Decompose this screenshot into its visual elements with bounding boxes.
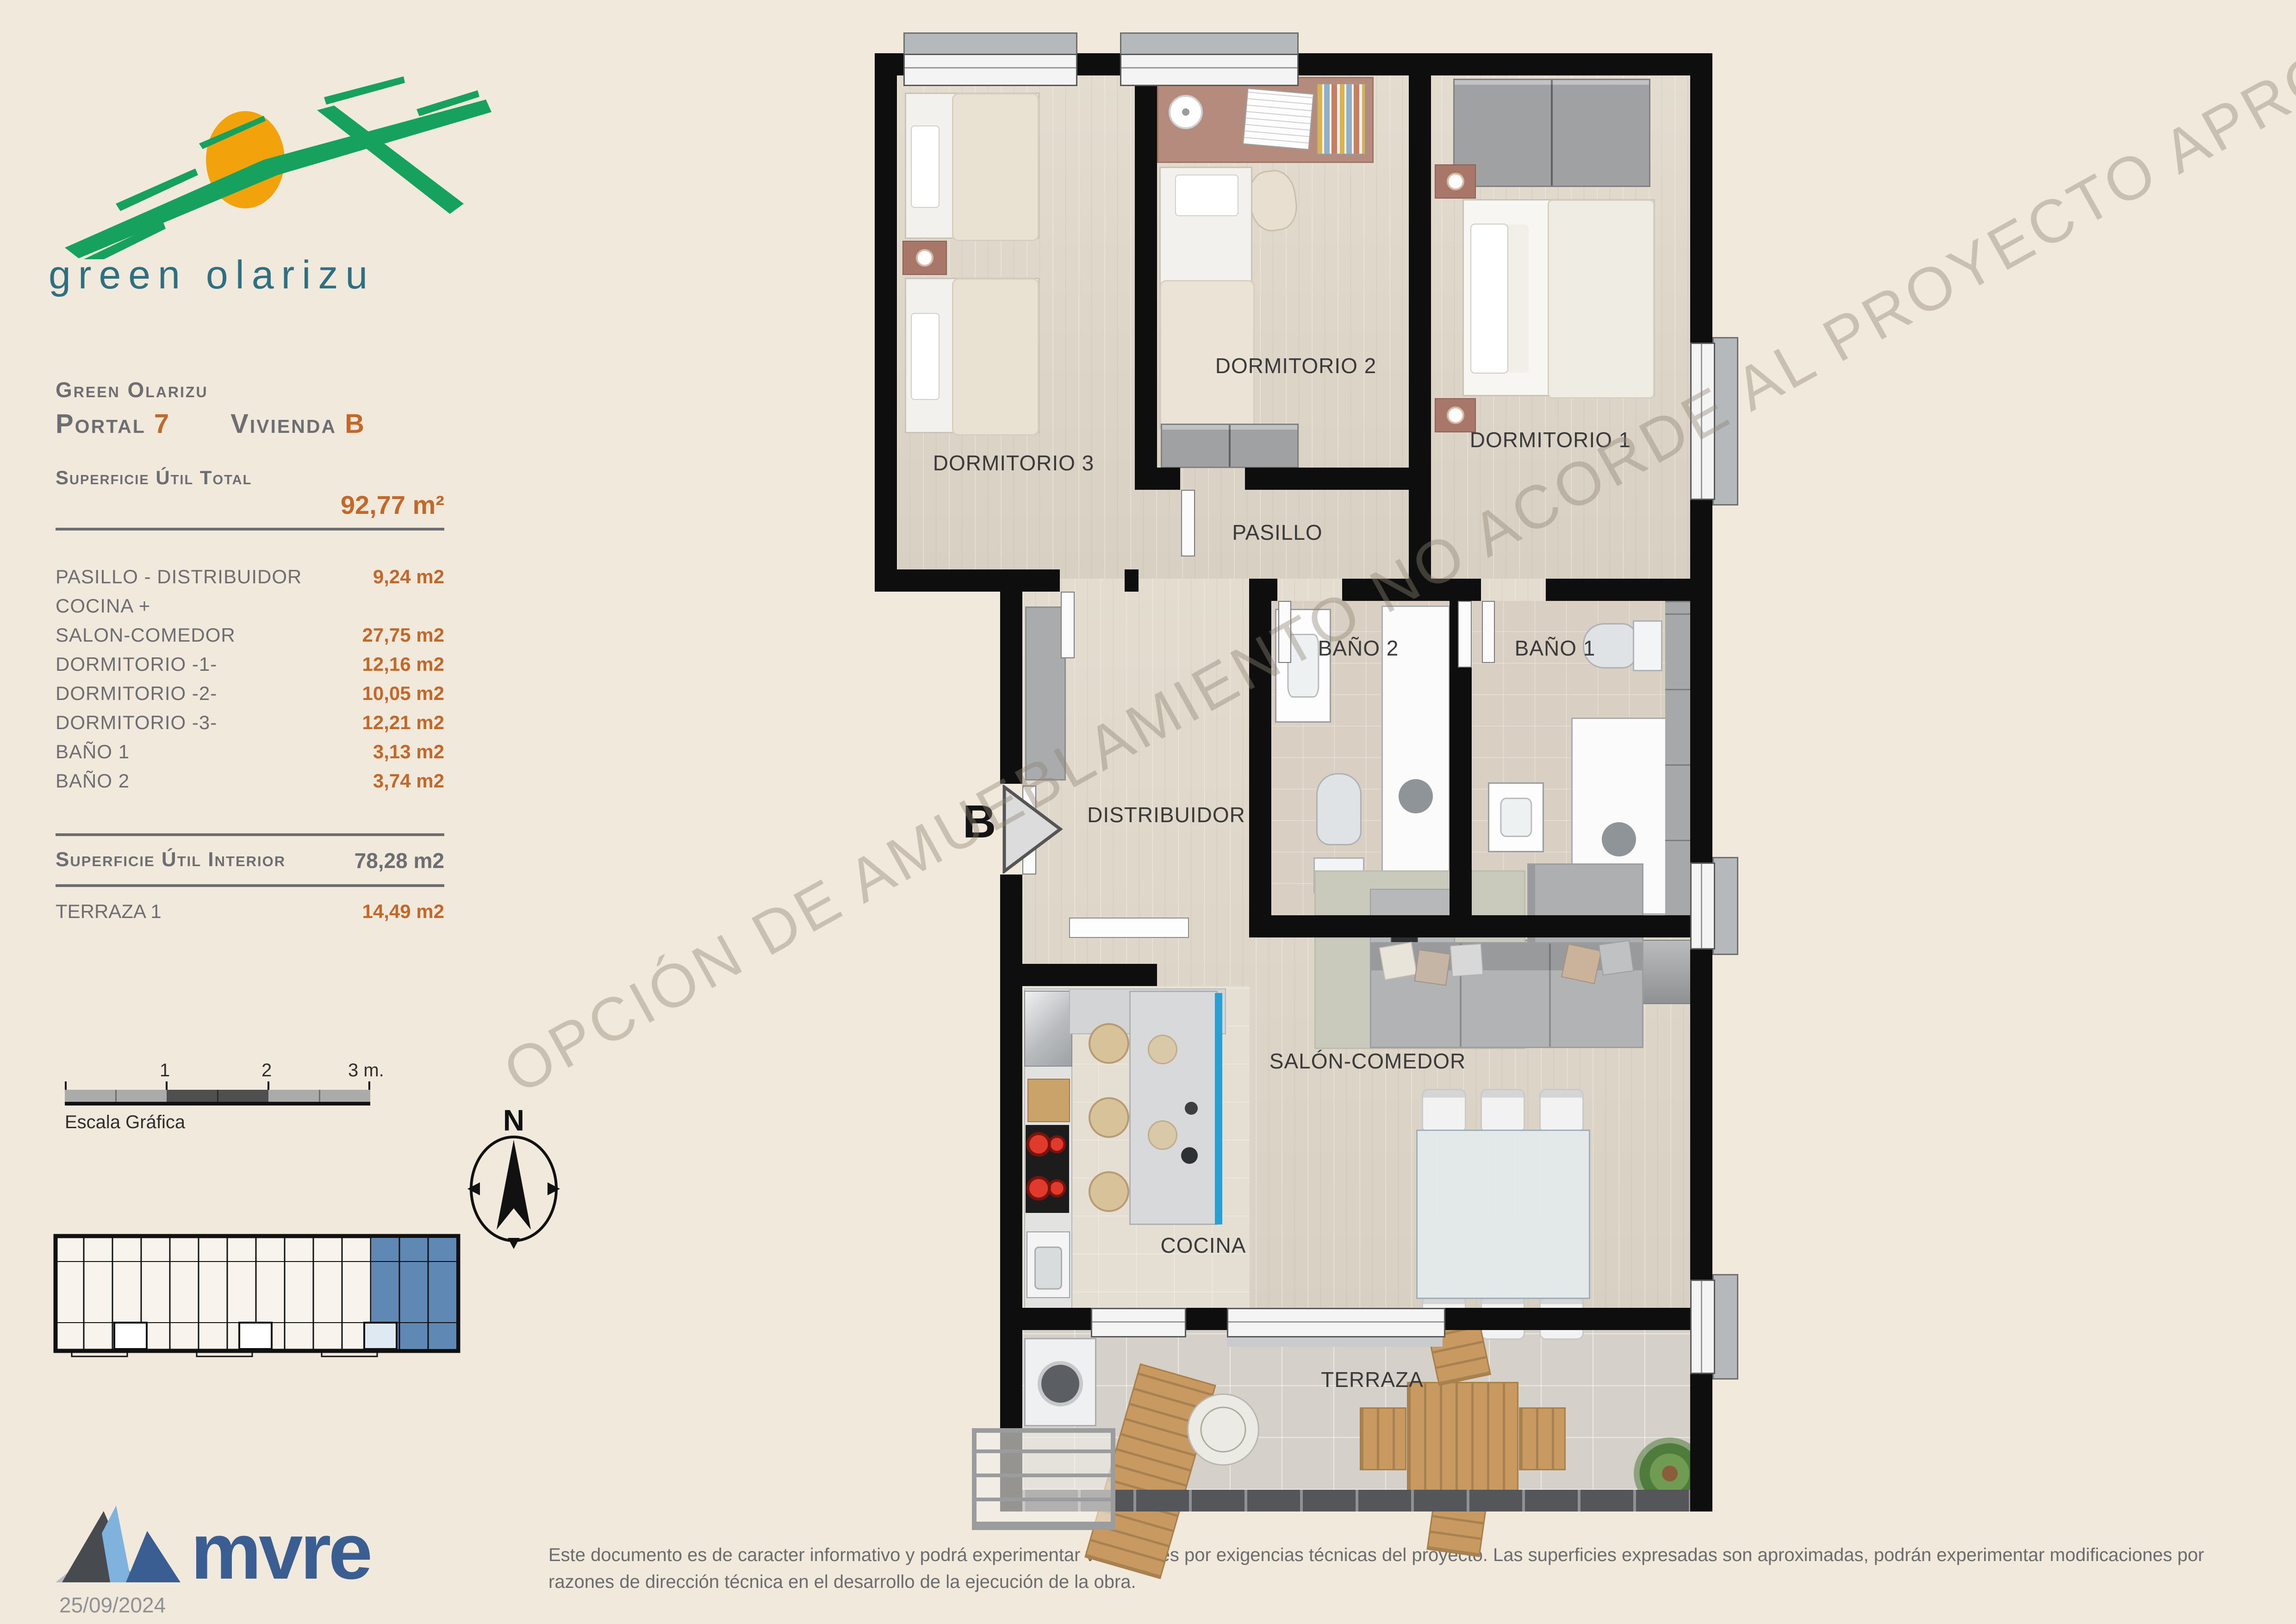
wall <box>1443 1308 1690 1330</box>
room-label-terraza: TERRAZA <box>1321 1367 1424 1392</box>
cushion <box>1599 940 1634 976</box>
graphic-scale: 1 2 3 m. Escala Gráfica <box>65 1060 370 1139</box>
bowl <box>1185 1102 1198 1115</box>
single-bed <box>905 93 1039 239</box>
washbasin <box>1488 782 1544 852</box>
mvre-logo: mvre <box>56 1505 417 1595</box>
nightstand <box>902 241 947 275</box>
plate <box>1148 1035 1177 1064</box>
vivienda-label: ViviendaB <box>230 408 366 439</box>
wall <box>1409 75 1431 468</box>
svg-text:N: N <box>503 1106 524 1137</box>
wall <box>1135 75 1157 468</box>
portal-number: 7 <box>146 409 170 439</box>
list-item: COCINA + <box>56 595 444 624</box>
list-item: DORMITORIO -3-12,21 m2 <box>56 712 444 741</box>
stool <box>1089 1023 1129 1064</box>
window-shutter-box <box>1120 32 1299 56</box>
cushion <box>1561 943 1602 984</box>
window-shutter-box <box>1712 1274 1738 1380</box>
list-item: DORMITORIO -2-10,05 m2 <box>56 682 444 712</box>
wall <box>1183 1308 1227 1330</box>
wall <box>1546 579 1690 601</box>
stool <box>1089 1171 1129 1212</box>
wall <box>1125 569 1139 592</box>
room-label-dorm3: DORMITORIO 3 <box>933 450 1095 475</box>
built-in-closet <box>1665 601 1690 915</box>
laptop <box>1243 88 1314 150</box>
wall <box>875 569 1060 592</box>
wall <box>1245 468 1431 490</box>
scale-tick-label: 1 <box>160 1060 170 1081</box>
window-shutter-box <box>903 32 1077 56</box>
wall <box>875 53 897 592</box>
dining-chair <box>1422 1089 1466 1133</box>
terrace-chair <box>1360 1407 1406 1470</box>
cushion <box>1379 942 1417 980</box>
room-area-list: PASILLO - DISTRIBUIDOR9,24 m2 COCINA + S… <box>56 566 444 799</box>
kitchen-island <box>1129 991 1218 1225</box>
window <box>903 54 1077 86</box>
fridge <box>1024 991 1072 1067</box>
side-table <box>1187 1393 1259 1466</box>
dining-table <box>1416 1130 1590 1299</box>
project-title: Green Olarizu <box>56 377 208 402</box>
terrace-table <box>1407 1382 1518 1500</box>
door-leaf <box>1181 490 1195 556</box>
scale-tick-label: 2 <box>261 1060 272 1081</box>
document-date: 25/09/2024 <box>59 1593 166 1618</box>
cushion <box>1414 949 1450 986</box>
wall-clock-icon <box>1169 95 1203 129</box>
bowl <box>1181 1147 1198 1164</box>
terrace-chair <box>1519 1407 1566 1470</box>
list-item: DORMITORIO -1-12,16 m2 <box>56 653 444 682</box>
list-item: BAÑO 13,13 m2 <box>56 741 444 770</box>
dining-chair <box>1539 1089 1584 1133</box>
room-label-distribuidor: DISTRIBUIDOR <box>1087 802 1245 827</box>
window <box>1120 54 1299 86</box>
wall <box>1249 915 1690 937</box>
window-shutter-box <box>1712 857 1738 955</box>
unit-title: Portal7 ViviendaB <box>56 408 366 439</box>
list-item: BAÑO 23,74 m2 <box>56 770 444 799</box>
single-bed <box>905 278 1039 433</box>
stool <box>1089 1097 1129 1138</box>
scale-tick-label: 3 m. <box>348 1060 384 1081</box>
scale-caption: Escala Gráfica <box>65 1112 185 1133</box>
building-key-plan <box>53 1234 460 1359</box>
legal-disclaimer: Este documento es de caracter informativ… <box>548 1542 2275 1595</box>
book-shelf <box>1317 83 1366 155</box>
door-leaf <box>1061 592 1075 658</box>
total-surface-label: Superficie Útil Total <box>56 467 252 489</box>
kitchen-sink <box>1027 1231 1070 1298</box>
cutting-board <box>1027 1079 1070 1122</box>
window <box>1690 862 1715 949</box>
double-bed <box>1462 199 1655 396</box>
logo-brush-icon <box>65 76 492 259</box>
terrace-railing <box>1022 1490 1690 1512</box>
wall <box>1022 964 1157 986</box>
divider <box>56 528 444 531</box>
single-bed <box>1159 167 1252 429</box>
total-surface-value: 92,77 m² <box>56 490 444 520</box>
room-label-pasillo: PASILLO <box>1232 520 1322 545</box>
portal-label: Portal7 <box>56 408 170 439</box>
wall <box>1000 1308 1091 1330</box>
door-leaf <box>1482 601 1495 663</box>
wardrobe <box>1161 424 1299 468</box>
room-label-bano1: BAÑO 1 <box>1515 636 1596 661</box>
window <box>1690 1280 1715 1374</box>
door-leaf <box>1458 601 1472 668</box>
list-item: SALON-COMEDOR27,75 m2 <box>56 624 444 653</box>
room-label-cocina: COCINA <box>1161 1233 1246 1258</box>
interior-surface-row: Superficie Útil Interior78,28 m2 <box>56 848 444 873</box>
wall <box>1249 579 1277 601</box>
kitchen-terrace-window <box>1091 1308 1186 1337</box>
cooktop <box>1026 1125 1069 1213</box>
dining-chair <box>1481 1089 1525 1133</box>
svg-text:mvre: mvre <box>191 1507 370 1595</box>
plate <box>1148 1120 1177 1150</box>
green-olarizu-logo <box>46 65 509 259</box>
wardrobe <box>1453 79 1650 187</box>
brand-wordmark: green olarizu <box>49 252 375 298</box>
divider <box>56 884 444 887</box>
nightstand <box>1435 164 1476 199</box>
floorplan-sheet: green olarizu Green Olarizu Portal7 Vivi… <box>0 0 2296 1624</box>
console-table <box>1069 918 1189 938</box>
island-bar-edge <box>1215 993 1222 1224</box>
divider <box>56 833 444 836</box>
list-item: PASILLO - DISTRIBUIDOR9,24 m2 <box>56 566 444 595</box>
wall <box>1000 874 1022 1319</box>
room-label-dorm2: DORMITORIO 2 <box>1215 353 1377 378</box>
room-label-salon: SALÓN-COMEDOR <box>1269 1049 1466 1074</box>
washing-machine <box>1024 1338 1096 1426</box>
north-compass-icon: N <box>465 1106 562 1250</box>
drying-rack <box>972 1428 1115 1530</box>
terrace-sliding-door <box>1227 1308 1445 1337</box>
cushion <box>1450 943 1484 977</box>
vivienda-letter: B <box>336 409 366 439</box>
wall <box>1135 468 1180 490</box>
terrace-surface-row: TERRAZA 114,49 m2 <box>56 900 444 923</box>
